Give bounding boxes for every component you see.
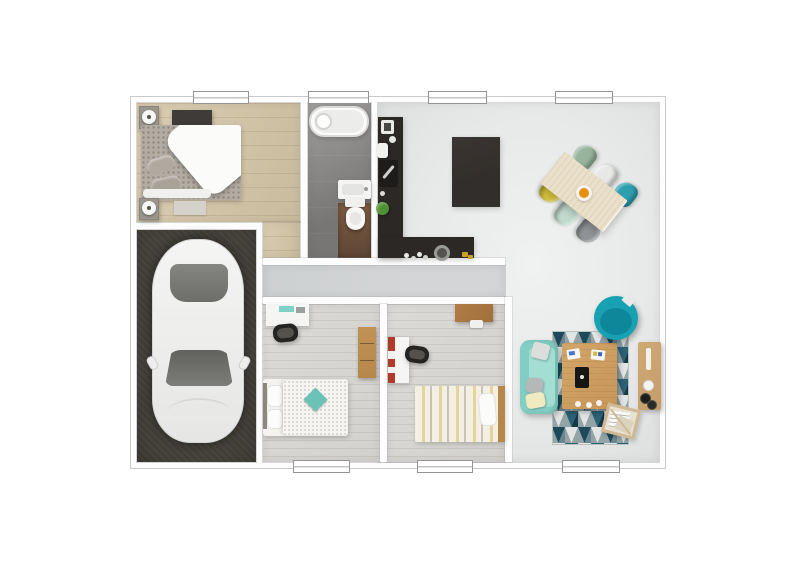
cooktop-dot — [417, 252, 422, 257]
bed-pillow — [267, 409, 283, 429]
coffee-table — [562, 343, 617, 409]
car — [152, 239, 244, 443]
bed-pillow — [145, 153, 177, 177]
fruit-bowl-plate — [576, 185, 592, 201]
kitchen-gold-item — [468, 255, 473, 259]
desk-teal-item — [279, 306, 294, 312]
bedroom-1-window — [193, 91, 249, 104]
bathroom-window — [308, 91, 369, 104]
wall-bedroom2-bedroom3 — [380, 304, 387, 462]
sofa — [520, 340, 558, 414]
bedroom2-bed — [263, 379, 348, 436]
bed-sheet-fold — [143, 189, 211, 198]
bathtub-faucet — [315, 113, 332, 130]
bed-wood-frame — [498, 386, 505, 442]
washbasin-bowl — [342, 184, 364, 195]
table-paper — [566, 348, 580, 360]
desk-gray-item — [296, 307, 305, 313]
bed-pillow — [478, 392, 498, 426]
bedroom3-bed — [415, 386, 505, 442]
table-paper — [591, 349, 606, 360]
car-hood-line — [167, 398, 231, 428]
sideboard-lamp-shade — [643, 380, 654, 391]
sideboard-lamp-stem — [646, 348, 651, 370]
table-candle — [596, 400, 602, 406]
chair-seat — [277, 327, 295, 339]
bedroom1-foot-mat — [174, 201, 206, 215]
sink-faucet — [382, 165, 395, 179]
shelf-white-item — [470, 320, 483, 328]
car-rear-window — [170, 264, 228, 302]
kitchen-small-item — [380, 191, 385, 196]
cooktop-dot — [411, 256, 416, 261]
washbasin — [338, 180, 371, 199]
kitchen-pot — [434, 245, 450, 261]
toilet-seat — [350, 212, 361, 225]
toilet-tank — [345, 198, 365, 207]
table-candle — [575, 401, 581, 407]
lamp-center-dot — [147, 115, 151, 119]
washbasin-tap — [364, 187, 368, 191]
cooktop-dot — [404, 253, 409, 258]
floorplan-canvas — [0, 0, 800, 568]
bedroom3-desk-shelf — [388, 337, 409, 383]
sideboard-vinyl-disc — [647, 400, 657, 410]
paper-print — [569, 351, 575, 356]
wardrobe-line — [360, 360, 374, 361]
bedroom-3-window — [417, 460, 473, 473]
kitchen-jar — [389, 136, 396, 143]
paper-print — [598, 352, 602, 356]
bedroom-2-window — [293, 460, 350, 473]
kitchen-sink — [379, 160, 398, 187]
bedroom1-lamp-bottom — [142, 201, 156, 215]
armchair-seat — [600, 308, 632, 335]
table-tablet — [575, 367, 589, 388]
fruit-bowl — [579, 188, 589, 198]
car-windshield — [165, 350, 233, 386]
cooktop-dot — [423, 255, 428, 260]
wardrobe-line — [360, 343, 374, 344]
bedroom1-lamp-top — [142, 110, 156, 124]
toilet-bowl — [346, 207, 365, 230]
shelf-gap — [388, 367, 395, 373]
wall-bedroom3-living — [505, 297, 512, 462]
shelf-gap — [388, 351, 395, 359]
bedroom1-double-bed — [141, 125, 241, 200]
table-candle — [586, 402, 592, 408]
paper-print — [593, 351, 597, 355]
coffee-machine — [377, 143, 388, 158]
lamp-center-dot — [147, 206, 151, 210]
tablet-button — [580, 375, 584, 379]
wall-hallway-top — [263, 258, 505, 265]
dining-window — [555, 91, 613, 104]
kitchen-microwave — [381, 120, 394, 134]
bedroom-1-doorway-floor — [263, 222, 300, 258]
living-window — [562, 460, 620, 473]
kitchen-island — [452, 137, 500, 207]
microwave-door — [384, 123, 391, 131]
sideboard — [638, 342, 661, 410]
hallway-floor — [263, 265, 505, 297]
bed-pillow — [267, 385, 283, 407]
kitchen-plant — [376, 202, 389, 215]
shelf-red-column — [388, 337, 395, 383]
bathtub — [309, 106, 369, 137]
kitchen-window — [428, 91, 487, 104]
chair-seat — [408, 349, 425, 360]
bedroom2-wardrobe — [358, 327, 376, 378]
wall-hallway-bottom — [263, 297, 505, 304]
swivel-armchair — [594, 296, 638, 340]
